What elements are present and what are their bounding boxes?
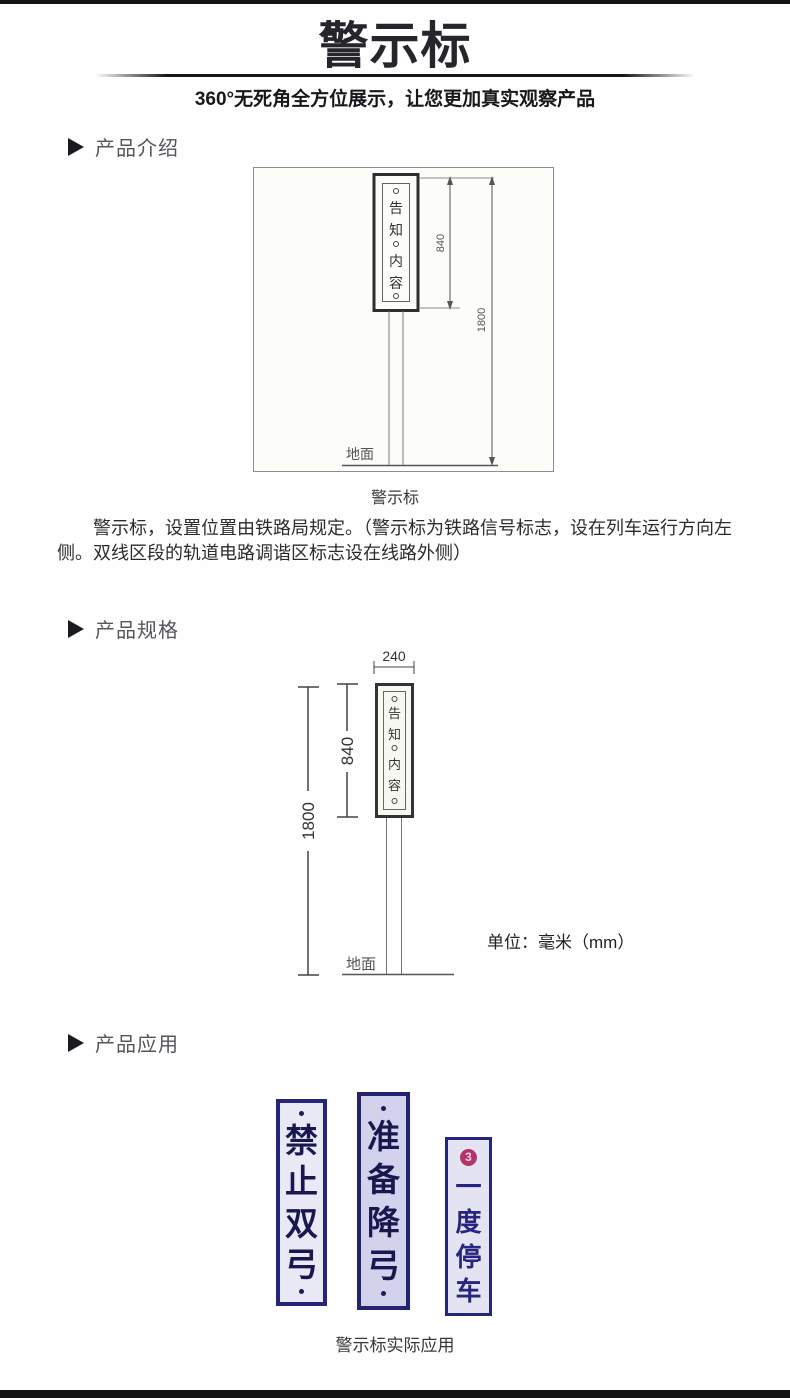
bottom-border-bar [0,1390,790,1398]
section-title-specs: 产品规格 [95,614,179,643]
product-detail-page: 警示标 360°无死角全方位展示，让您更加真实观察产品 产品介绍 840 [0,0,790,1398]
sign-char: 一 [455,1174,481,1200]
section-arrow-icon [68,138,84,156]
sign-image-forbid-double-pantograph: 禁 止 双 弓 [276,1099,327,1306]
sign-char: 知 [388,727,401,742]
extension-lines [420,178,494,308]
sign-char: 度 [455,1209,481,1235]
sign-char: 停 [455,1244,481,1270]
sign-char: 弓 [367,1249,400,1282]
sign-char: 禁 [285,1124,318,1157]
sign-char: 容 [389,275,403,291]
page-subtitle: 360°无死角全方位展示，让您更加真实观察产品 [0,84,790,111]
intro-paragraph: 警示标，设置位置由铁路局规定。（警示标为铁路信号标志，设在列车运行方向左侧。双线… [57,516,735,566]
dim-1800: 1800 [476,176,495,466]
sign-post-drawing [387,818,402,974]
ground-label: 地面 [346,956,376,973]
sign-char: 双 [285,1207,318,1240]
circled-3-badge: 3 [460,1149,477,1166]
sign-char: 降 [367,1206,400,1239]
sign-board-drawing: 告 知 内 容 [374,175,418,311]
sign-char: 容 [388,778,401,793]
sign-char: 车 [455,1278,481,1304]
dim-840-label: 840 [435,234,447,252]
top-border-bar [0,0,790,4]
sign-char: 弓 [285,1248,318,1281]
dim-840: 840 [435,176,453,310]
intro-diagram-caption: 警示标 [0,484,790,508]
sign-char: 告 [388,706,401,721]
section-header-intro: 产品介绍 [68,132,179,161]
dim-1800: 1800 [298,687,319,975]
intro-diagram-drawing: 840 1800 告 知 内 容 [254,168,553,471]
dim-240-label: 240 [382,648,406,664]
sign-char: 告 [389,200,403,216]
application-caption: 警示标实际应用 [0,1331,790,1356]
sign-char: 内 [389,253,403,269]
page-title: 警示标 [0,6,790,78]
ground-drawing: 地面 [342,956,454,975]
section-arrow-icon [68,620,84,638]
sign-image-prepare-lower-pantograph: 准 备 降 弓 [357,1092,410,1310]
intro-diagram-image: 840 1800 告 知 内 容 [253,167,554,472]
sign-char: 内 [388,757,401,772]
sign-char: 备 [367,1163,400,1196]
mount-hole-dot [381,1106,386,1111]
sign-char: 知 [389,222,403,238]
section-title-intro: 产品介绍 [95,132,179,161]
sign-board-drawing: 告 知 内 容 [377,685,413,817]
ground-drawing: 地面 [342,446,498,466]
section-header-application: 产品应用 [68,1028,179,1057]
section-header-specs: 产品规格 [68,614,179,643]
mount-hole-dot [299,1111,304,1116]
mount-hole-dot [299,1289,304,1294]
badge-number: 3 [465,1150,472,1164]
sign-image-one-stop: 3 一 度 停 车 [445,1137,492,1316]
unit-note: 单位：毫米（mm） [487,928,634,953]
dim-840-label: 840 [338,737,357,765]
dim-240: 240 [374,648,414,674]
sign-char: 止 [285,1165,318,1198]
dim-840: 840 [337,684,358,817]
dim-1800-label: 1800 [299,802,318,840]
sign-char: 准 [367,1120,400,1153]
sign-post-drawing [389,311,403,465]
title-divider [95,74,695,77]
section-arrow-icon [68,1034,84,1052]
dim-1800-label: 1800 [476,308,488,332]
ground-label: 地面 [346,446,374,462]
mount-hole-dot [381,1291,386,1296]
section-title-application: 产品应用 [95,1028,179,1057]
